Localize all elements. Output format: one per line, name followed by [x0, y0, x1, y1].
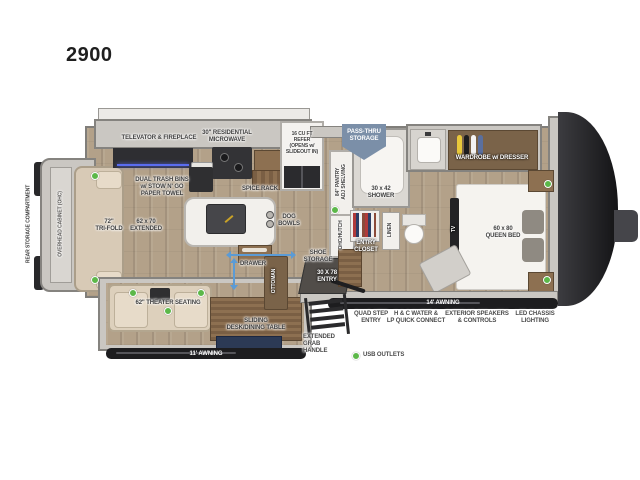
sliding-desk-label: SLIDING DESK/DINING TABLE [216, 318, 296, 332]
spice-label: SPICE RACK [238, 186, 282, 193]
toilet-bowl [404, 224, 424, 244]
quad-step [304, 294, 350, 338]
cooktop [212, 147, 252, 179]
freezer-divider [301, 166, 303, 188]
ohc-hutch-label: OHC/HUTCH [339, 215, 345, 255]
overhead-cabinet-label: OVERHEAD CABINET (OHC) [59, 181, 65, 266]
entry-closet [350, 210, 380, 242]
led-chassis-label: LED CHASSIS LIGHTING [505, 311, 565, 325]
awning-14-label: 14' AWNING [408, 300, 478, 307]
refer-label: 16 CU FT REFER (OPENS w/ SLIDEOUT IN) [280, 132, 324, 156]
passthru-label: PASS-THRU STORAGE [342, 129, 386, 143]
awning-11-label: 11' AWNING [171, 351, 241, 358]
usb-dot-nightstand-top [544, 180, 552, 188]
burner-1 [220, 153, 229, 162]
wardrobe-label: WARDROBE w/ DRESSER [450, 155, 534, 162]
dog-bowl-2 [266, 220, 274, 228]
extended-label: 62 x 70 EXTENDED [124, 219, 168, 233]
drawer-label: DRAWER [233, 261, 273, 268]
dog-bowls-label: DOG BOWLS [276, 214, 302, 228]
microwave-label: 30" RESIDENTIAL MICROWAVE [197, 130, 257, 144]
sofa-pillow-top [96, 171, 122, 189]
burner-2 [234, 163, 243, 172]
floorplan-canvas: 2900 REAR STORAGE COMPARTMENT OVERHEAD C… [0, 0, 640, 480]
theater-seat-left [114, 292, 148, 328]
hitch-pin-box [614, 210, 638, 242]
vanity-faucet [425, 132, 431, 136]
theater-seat-right [174, 292, 208, 328]
tv-label: TV [452, 222, 458, 236]
usb-dot-theater-left [129, 289, 137, 297]
usb-dot-nightstand-bottom [543, 276, 551, 284]
hanging-clothes [457, 135, 487, 155]
shoe-storage-label: SHOE STORAGE [300, 250, 336, 264]
floorplan-title: 2900 [66, 44, 113, 67]
vanity-basin [417, 137, 441, 163]
closet-clothes [353, 213, 376, 237]
pantry-label: 84" PANTRY ADJ SHELVING [336, 160, 348, 204]
fireplace-tv [113, 148, 193, 168]
rear-storage-label: REAR STORAGE COMPARTMENT [27, 176, 33, 271]
grab-handle-label: EXTENDED GRAB HANDLE [303, 334, 353, 355]
entry-closet-label: ENTRY CLOSET [348, 240, 384, 254]
trash-bins [189, 167, 213, 192]
trash-label: DUAL TRASH BINS w/ STOW N' GO PAPER TOWE… [132, 177, 192, 198]
queen-bed-label: 60 x 80 QUEEN BED [478, 226, 528, 240]
usb-dot-theater-right [197, 289, 205, 297]
front-cap [558, 112, 618, 306]
usb-dot-theater-center [164, 307, 172, 315]
usb-dot-pantry [331, 206, 339, 214]
fireplace-glow [117, 164, 189, 166]
dog-bowl-1 [266, 211, 274, 219]
usb-legend-dot [352, 352, 360, 360]
shower-label: 30 x 42 SHOWER [359, 186, 403, 200]
ottoman-label: OTTOMAN [272, 258, 278, 304]
entry-door-label: 30 X 78 ENTRY [307, 270, 347, 284]
bed-pillow-2 [522, 238, 544, 262]
usb-dot-sofa-top [91, 172, 99, 180]
wardrobe-dresser [448, 130, 538, 170]
trifold-label: 72" TRI-FOLD [89, 219, 129, 233]
bath-vanity [410, 129, 446, 170]
refer-freezer-doors [284, 166, 320, 188]
usb-dot-sofa-bottom [91, 276, 99, 284]
usb-legend-label: USB OUTLETS [363, 352, 423, 359]
linen-label: LINEN [388, 217, 394, 243]
